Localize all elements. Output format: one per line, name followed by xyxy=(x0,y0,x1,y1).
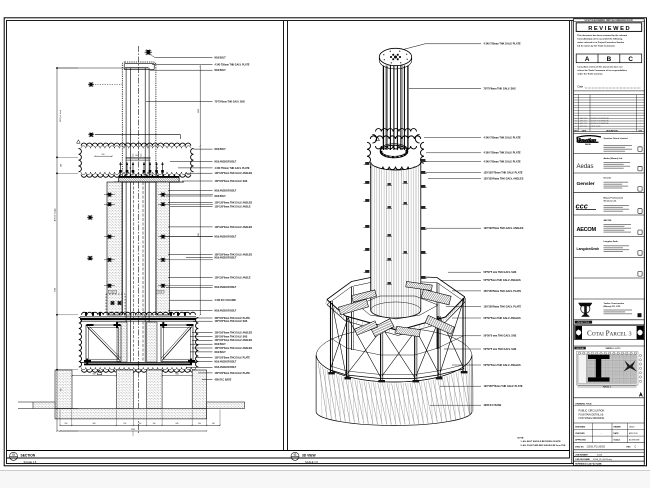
svg-text:120*120*6mm THK GALV. ANGLES: 120*120*6mm THK GALV. ANGLES xyxy=(484,178,524,181)
svg-text:PROJECT TITLE: PROJECT TITLE xyxy=(577,322,589,324)
svg-text:FOR STEEL DRAWING: FOR STEEL DRAWING xyxy=(579,417,605,420)
svg-text:150*150*6mm THK GALV. ANGLES: 150*150*6mm THK GALV. ANGLES xyxy=(215,339,253,342)
svg-text:1128: 1128 xyxy=(198,109,200,113)
svg-text:status referred to in Project: status referred to in Project Procedure … xyxy=(577,41,624,44)
svg-text:Services Ltd.: Services Ltd. xyxy=(604,200,617,203)
svg-text:150*150*8mm THK GALV. PLATE: 150*150*8mm THK GALV. PLATE xyxy=(215,372,251,375)
svg-text:50*50*5 mm THK GALV. SHS: 50*50*5 mm THK GALV. SHS xyxy=(484,335,517,338)
svg-text:2. ALL FILLET WELDED SHOULD B: 2. ALL FILLET WELDED SHOULD BE 3mm THK. xyxy=(521,444,567,447)
svg-text:NOTE:: NOTE: xyxy=(518,438,525,440)
svg-text:2934: 2934 xyxy=(131,429,135,431)
svg-text:Consultants(s) and is accorded: Consultants(s) and is accorded the follo… xyxy=(577,37,623,40)
svg-text:APPROVED: APPROVED xyxy=(575,439,586,442)
svg-text:50: 50 xyxy=(130,167,132,169)
svg-text:200: 200 xyxy=(212,423,215,425)
svg-text:31508: 31508 xyxy=(597,454,602,456)
svg-text:200: 200 xyxy=(153,423,156,425)
svg-text:SCALE: SCALE xyxy=(614,439,621,442)
svg-text:120*120*6mm THK GALV. ANGLE: 120*120*6mm THK GALV. ANGLE xyxy=(215,277,252,280)
svg-text:This document has been reviewe: This document has been reviewed by the r… xyxy=(577,34,627,37)
svg-text:JOB NUMBER: JOB NUMBER xyxy=(575,454,588,456)
svg-text:250: 250 xyxy=(102,154,105,156)
svg-text:COTAI PARCEL 3: COTAI PARCEL 3 xyxy=(587,330,631,338)
svg-text:Macau Professional: Macau Professional xyxy=(604,197,624,200)
svg-text:DESIGNED: DESIGNED xyxy=(575,427,586,429)
svg-text:150*150*8mm THK GALV. PLATE: 150*150*8mm THK GALV. PLATE xyxy=(215,357,251,360)
svg-text:50*50*5mm THK GALV. ANGLES: 50*50*5mm THK GALV. ANGLES xyxy=(484,317,522,320)
svg-text:Yackee Construction: Yackee Construction xyxy=(604,302,625,305)
svg-text:FOUNTAIN DETAIL (II): FOUNTAIN DETAIL (II) xyxy=(579,413,604,416)
svg-text:M16 ANCHOR BOLT: M16 ANCHOR BOLT xyxy=(215,366,237,369)
svg-text:R E V I E W E D: R E V I E W E D xyxy=(588,26,629,32)
svg-text:M16 ANCHOR BOLT: M16 ANCHOR BOLT xyxy=(215,160,237,163)
svg-text:120*150*70mm THK GALV. PLATE: 120*150*70mm THK GALV. PLATE xyxy=(484,172,523,175)
svg-text:1178 (ref. height): 1178 (ref. height) xyxy=(54,208,57,221)
svg-text:M16 BOLT: M16 BOLT xyxy=(215,352,227,354)
svg-text:120*120*6mm THK GALV. ANGLES: 120*120*6mm THK GALV. ANGLES xyxy=(215,226,253,229)
svg-text:2290: 2290 xyxy=(198,233,200,237)
svg-text:31508_PD_85050.dwg: 31508_PD_85050.dwg xyxy=(593,459,612,461)
svg-text:AECOM: AECOM xyxy=(577,227,597,233)
svg-text:50*50*5 mm THK GALV. SHS: 50*50*5 mm THK GALV. SHS xyxy=(484,348,517,351)
svg-text:M16 ANCHOR BOLT: M16 ANCHOR BOLT xyxy=(215,361,237,364)
svg-text:M16 BOLT: M16 BOLT xyxy=(215,196,227,198)
svg-text:50*50*5mm THK GALV. ANGLES: 50*50*5mm THK GALV. ANGLES xyxy=(484,364,522,367)
svg-text:3D VIEW: 3D VIEW xyxy=(302,454,316,458)
svg-text:AS SHOWN: AS SHOWN xyxy=(629,439,640,442)
svg-text:relieve the Trade Contractor: relieve the Trade Contractor of its resp… xyxy=(577,69,628,72)
svg-text:4 300 750mm THK GALV. PLATE: 4 300 750mm THK GALV. PLATE xyxy=(215,167,250,170)
svg-text:750: 750 xyxy=(61,389,63,392)
svg-text:2857 (ref. level): 2857 (ref. level) xyxy=(59,110,62,122)
svg-text:120*120*6mm THK GALV. ANGLE: 120*120*6mm THK GALV. ANGLE xyxy=(215,206,252,209)
svg-text:120*120*6mm THK GALV. ANGLES: 120*120*6mm THK GALV. ANGLES xyxy=(484,227,524,230)
svg-text:APR 2015: APR 2015 xyxy=(629,432,638,435)
svg-text:50*50*5mm THK GALV. ANGLES: 50*50*5mm THK GALV. ANGLES xyxy=(484,279,522,282)
svg-text:100: 100 xyxy=(135,155,138,157)
svg-text:DRAWN: DRAWN xyxy=(614,426,622,429)
svg-text:under the Trade Contract.: under the Trade Contract. xyxy=(577,72,603,75)
svg-text:DWG NO: DWG NO xyxy=(575,447,584,449)
svg-text:PARCEL 2: PARCEL 2 xyxy=(603,386,611,389)
svg-text:50*50*5 mm THK GALV. SHS: 50*50*5 mm THK GALV. SHS xyxy=(484,271,517,274)
svg-text:AECOM: AECOM xyxy=(604,219,612,222)
svg-text:M16 BOLT: M16 BOLT xyxy=(215,70,227,72)
svg-text:M16 BOLT: M16 BOLT xyxy=(215,344,227,346)
svg-text:(Macau) CO. LTD.: (Macau) CO. LTD. xyxy=(604,306,622,308)
svg-text:Date :: Date : xyxy=(578,85,585,89)
svg-text:150*150*6mm THK GALV. SHS: 150*150*6mm THK GALV. SHS xyxy=(215,335,248,338)
svg-text:120*120*6mm THK GALV. ANGLES: 120*120*6mm THK GALV. ANGLES xyxy=(215,202,253,205)
svg-text:150*150*6mm THK GALV. ANGLES: 150*150*6mm THK GALV. ANGLES xyxy=(215,253,253,256)
svg-text:M16 ANCHOR BOLT: M16 ANCHOR BOLT xyxy=(215,257,237,260)
svg-text:SCALE 1:5: SCALE 1:5 xyxy=(305,460,318,464)
svg-text:M16 ANCHOR BOLT: M16 ANCHOR BOLT xyxy=(215,286,237,289)
svg-text:150*150*6mm THK GALV. SHS: 150*150*6mm THK GALV. SHS xyxy=(215,320,248,323)
svg-text:4200 R.C BASE: 4200 R.C BASE xyxy=(215,379,232,382)
svg-text:200: 200 xyxy=(64,423,67,425)
svg-text:450*150*8mm THK GALV. PLATE: 450*150*8mm THK GALV. PLATE xyxy=(215,317,251,320)
svg-text:50: 50 xyxy=(157,167,159,169)
svg-text:2700: 2700 xyxy=(55,288,57,292)
svg-text:300: 300 xyxy=(61,164,63,167)
svg-text:Gensler: Gensler xyxy=(604,177,612,180)
svg-text:4 345 750mm THK GALV. PLATE: 4 345 750mm THK GALV. PLATE xyxy=(215,64,250,67)
svg-text:CAD FILE NAME: CAD FILE NAME xyxy=(575,458,590,461)
svg-text:B: B xyxy=(607,56,612,63)
svg-text:4 300 750mm THK GALV. PLATE: 4 300 750mm THK GALV. PLATE xyxy=(484,152,521,155)
svg-text:150*150*8mm THK GALV. PLATE: 150*150*8mm THK GALV. PLATE xyxy=(484,306,522,309)
svg-text:M16 BOLT: M16 BOLT xyxy=(215,57,227,59)
svg-text:4200 R.C BASE: 4200 R.C BASE xyxy=(484,404,502,407)
svg-text:M16 BOLT: M16 BOLT xyxy=(215,149,227,151)
svg-text:REV: REV xyxy=(627,447,632,449)
svg-text:844: 844 xyxy=(93,374,96,376)
svg-text:LWKD: LWKD xyxy=(629,427,635,429)
svg-text:4 345 750mm THK GALV. PLATE: 4 345 750mm THK GALV. PLATE xyxy=(484,136,521,139)
svg-text:4 300 R.C COLUMN: 4 300 R.C COLUMN xyxy=(215,299,236,302)
svg-text:PARCEL 1, LOT 2: PARCEL 1, LOT 2 xyxy=(606,347,621,350)
svg-text:LangdonSeah: LangdonSeah xyxy=(577,247,599,251)
svg-text:200: 200 xyxy=(123,423,126,425)
svg-text:PUBLIC CIRCULATION: PUBLIC CIRCULATION xyxy=(579,410,605,413)
svg-text:75*75*6mm THK GALV. SHS: 75*75*6mm THK GALV. SHS xyxy=(484,88,516,91)
svg-text:REFERENCE CAD FILE NAME: REFERENCE CAD FILE NAME xyxy=(575,463,602,466)
svg-text:4 345 750mm THK GALV. PLATE: 4 345 750mm THK GALV. PLATE xyxy=(484,160,521,163)
svg-text:SCALE 1:5: SCALE 1:5 xyxy=(24,460,37,464)
svg-text:844: 844 xyxy=(93,423,96,425)
svg-text:150*150*6mm THK GALV. ANGLES: 150*150*6mm THK GALV. ANGLES xyxy=(215,331,253,334)
svg-text:150: 150 xyxy=(138,423,141,425)
svg-text:845: 845 xyxy=(176,423,179,425)
svg-text:Venetian Orient Limited: Venetian Orient Limited xyxy=(604,137,629,140)
svg-text:Aedas (Macau) Ltd.: Aedas (Macau) Ltd. xyxy=(604,157,623,160)
svg-text:120*150*70mm THK GALV. PLATE: 120*150*70mm THK GALV. PLATE xyxy=(484,385,523,388)
svg-text:Aedas: Aedas xyxy=(577,164,594,170)
svg-text:150*150*6mm THK GALV. ANGLES: 150*150*6mm THK GALV. ANGLES xyxy=(215,347,253,350)
svg-text:M16 ANCHOR BOLT: M16 ANCHOR BOLT xyxy=(215,236,237,239)
svg-text:4 345 750mm THK GALV. PLATE: 4 345 750mm THK GALV. PLATE xyxy=(484,43,521,46)
svg-text:120*120*6mm THK GALV. ANGLES: 120*120*6mm THK GALV. ANGLES xyxy=(215,172,253,175)
svg-text:CHECKED: CHECKED xyxy=(575,433,585,435)
svg-text:844: 844 xyxy=(176,374,179,376)
svg-text:Langdon Seah: Langdon Seah xyxy=(604,241,619,243)
svg-text:450*150*8mm THK GALV. PLATE: 450*150*8mm THK GALV. PLATE xyxy=(484,290,522,293)
svg-text:FIRST ISSUE: FIRST ISSUE xyxy=(591,126,601,128)
svg-text:75*75*6mm THK GALV. SHS: 75*75*6mm THK GALV. SHS xyxy=(215,100,246,103)
svg-text:M16 ANCHOR BOLT: M16 ANCHOR BOLT xyxy=(215,190,237,193)
svg-text:Consultant review of this: Consultant review of this document does … xyxy=(577,65,622,68)
svg-text:M16 ANCHOR BOLT: M16 ANCHOR BOLT xyxy=(215,310,237,313)
svg-text:A: A xyxy=(585,56,590,63)
svg-text:C: C xyxy=(628,56,633,63)
svg-text:DESCRIPTION: DESCRIPTION xyxy=(606,130,618,132)
svg-text:1. ALL BOLT SHOULD BE FIXING: 1. ALL BOLT SHOULD BE FIXING ON SITE. xyxy=(521,440,562,443)
svg-text:SECTION: SECTION xyxy=(21,454,36,458)
svg-text:150*150*6mm THK GALV. SHS: 150*150*6mm THK GALV. SHS xyxy=(215,180,248,183)
svg-text:200: 200 xyxy=(198,423,201,425)
svg-text:DATE: DATE xyxy=(614,432,620,435)
svg-text:5.4 for action by the Tra: 5.4 for action by the Trade Contractor. xyxy=(577,44,615,47)
svg-text:31508_PD_85050: 31508_PD_85050 xyxy=(587,447,606,449)
svg-text:DRAWING TITLE:: DRAWING TITLE: xyxy=(576,402,593,405)
svg-text:Gensler: Gensler xyxy=(577,181,595,187)
